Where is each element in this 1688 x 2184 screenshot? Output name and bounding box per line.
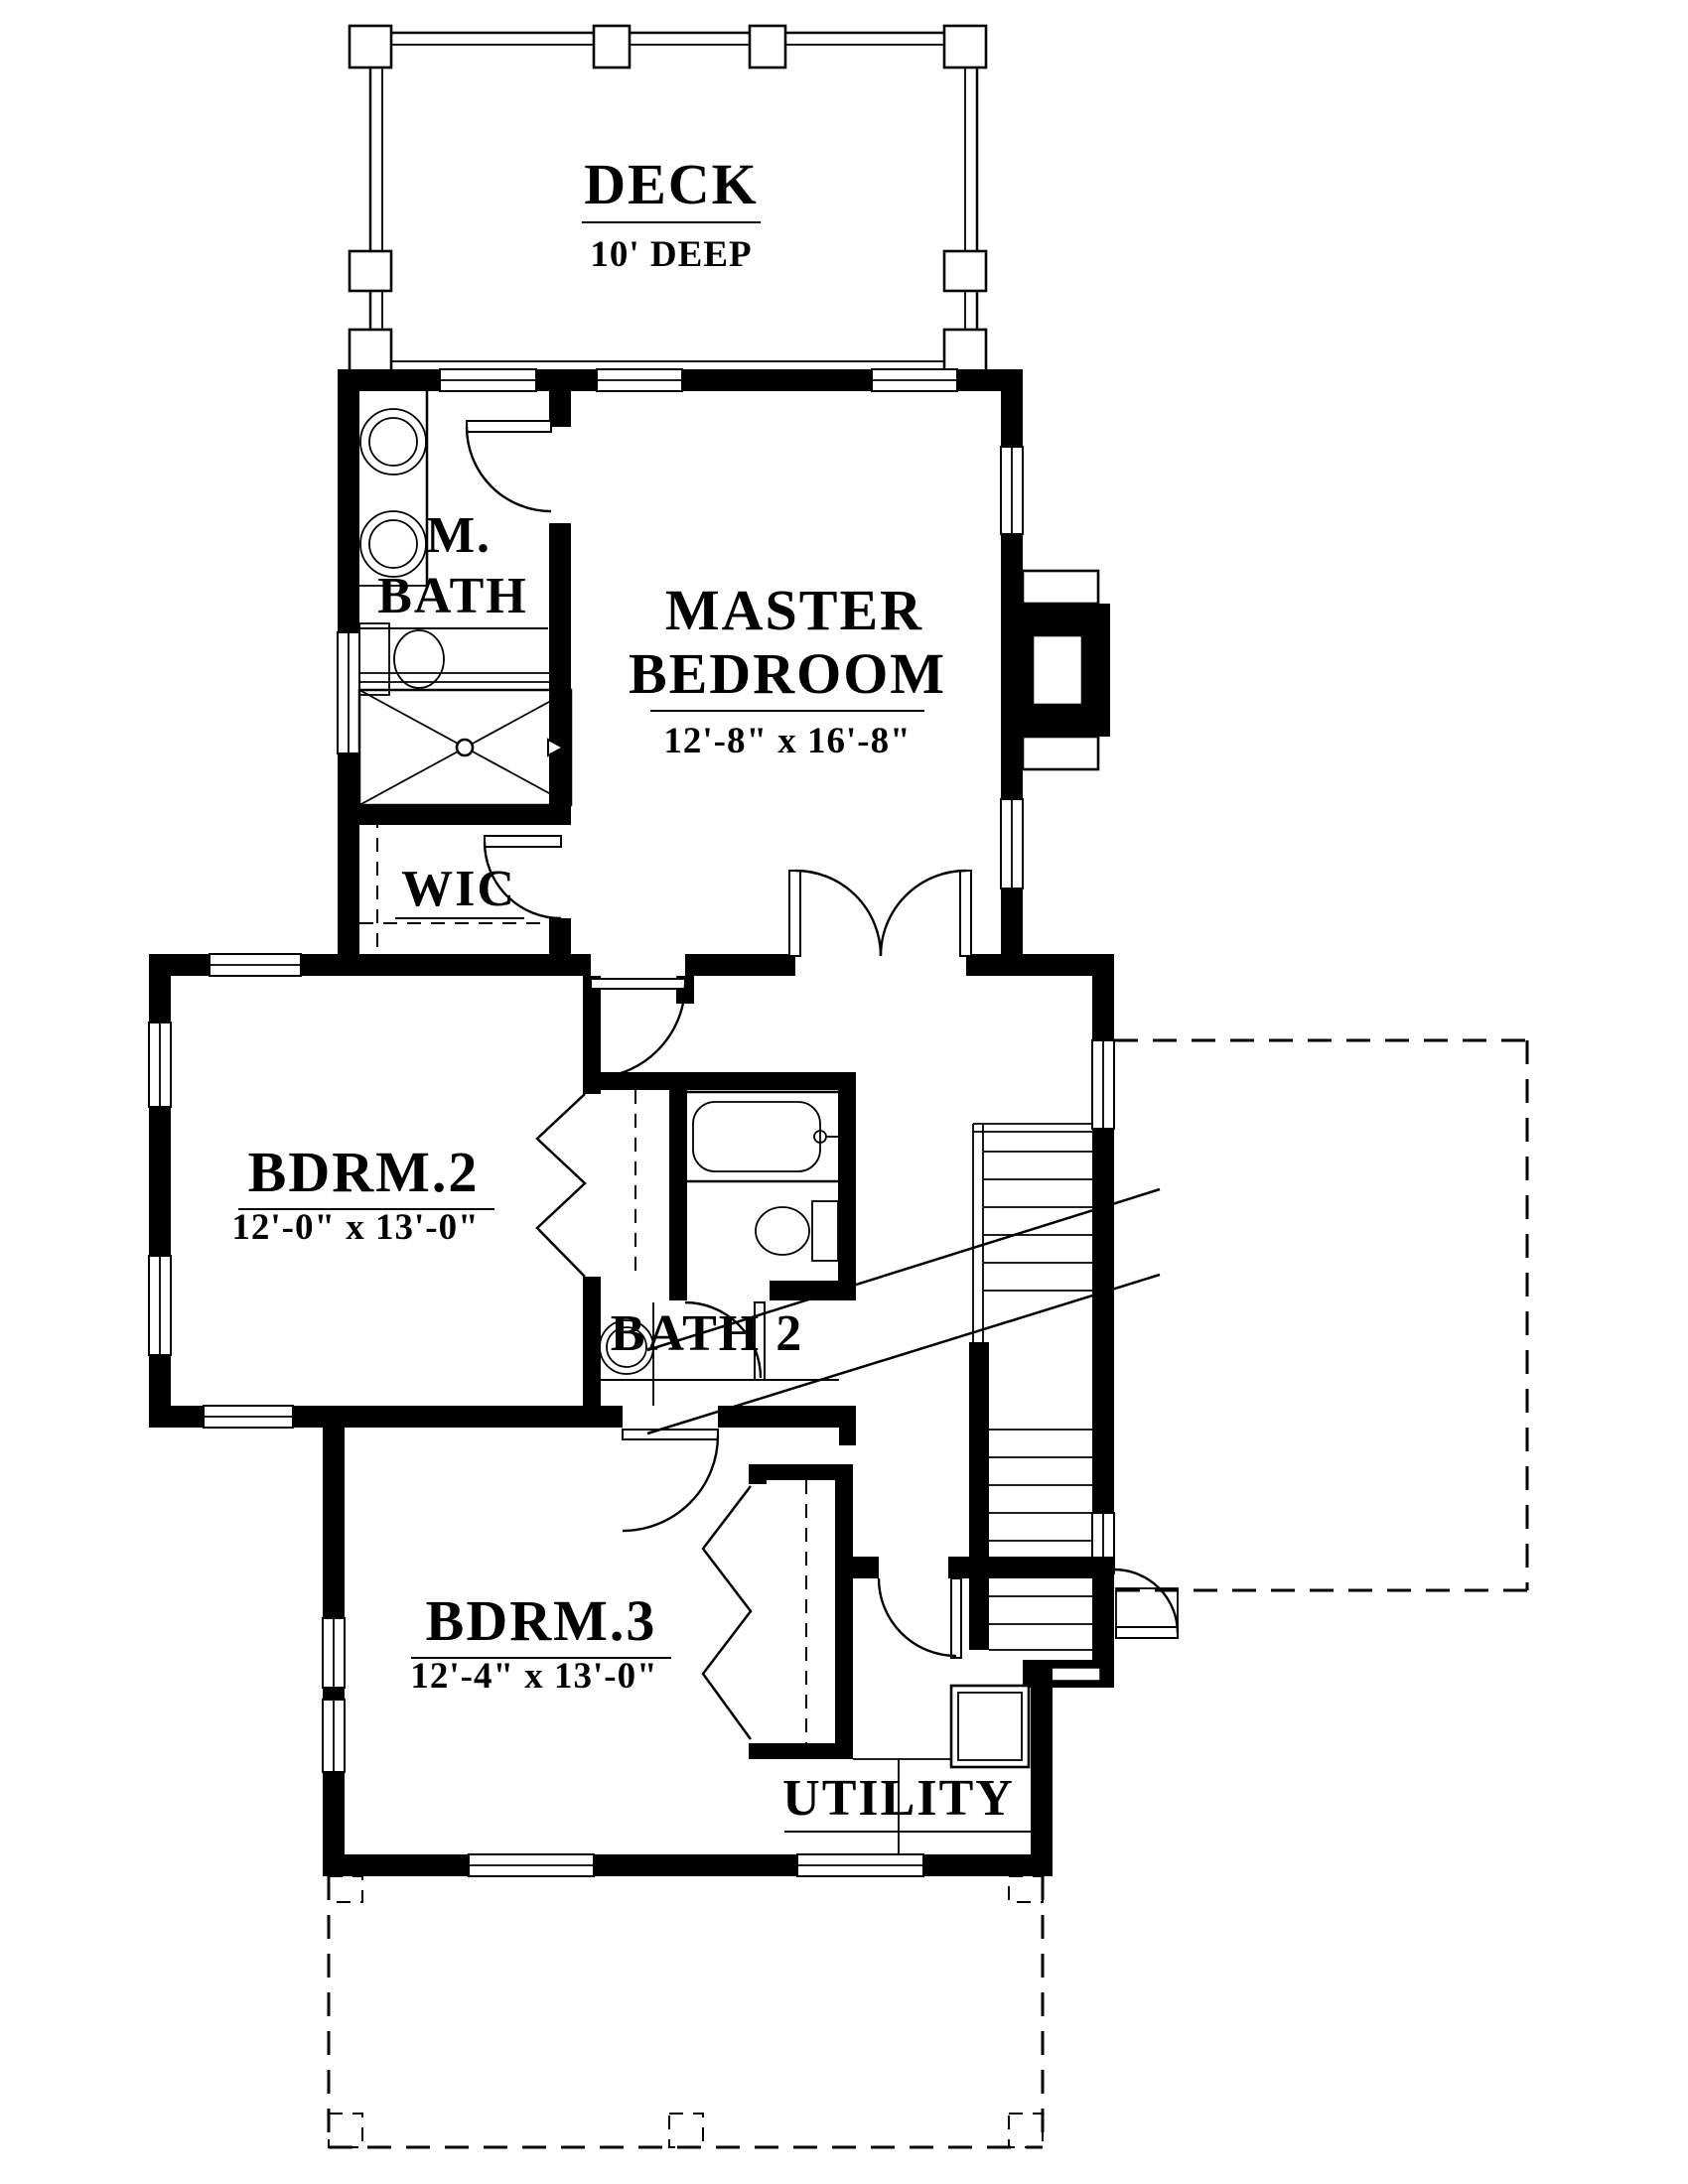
floor-plan-drawing: DECK 10' DEEP M. BATH MASTER BEDROOM 12'… — [0, 0, 1688, 2184]
bdrm2-door-arc — [591, 984, 685, 1078]
closet-opening — [749, 1484, 767, 1741]
utility-label: UTILITY — [782, 1770, 1015, 1827]
landing-door-arc — [1114, 1570, 1178, 1633]
deck-post — [350, 251, 391, 291]
double-door-arc — [795, 871, 881, 956]
deck-label: DECK — [584, 152, 759, 216]
wall-utility-top — [853, 1557, 879, 1578]
wall-bath2-top — [583, 1072, 856, 1090]
bdrm3-label: BDRM.3 — [426, 1588, 657, 1653]
landing-exterior-door — [1114, 1570, 1178, 1638]
sink-icon — [369, 418, 417, 466]
deck-post — [750, 26, 785, 68]
floor-plan-page: DECK 10' DEEP M. BATH MASTER BEDROOM 12'… — [0, 0, 1688, 2184]
washer-dryer-icon — [951, 1686, 1029, 1767]
wall-bottom — [323, 1854, 1053, 1876]
porch-post-dashed — [329, 2114, 362, 2147]
deck-dim-label: 10' DEEP — [590, 234, 752, 275]
wall-stub — [839, 1406, 856, 1445]
door-opening — [795, 953, 966, 977]
firebox — [1033, 635, 1082, 705]
bdrm3-door-leaf — [623, 1430, 718, 1439]
chimney-top-notch — [1023, 571, 1098, 604]
stair-wall — [969, 1342, 989, 1650]
toilet-tank — [359, 623, 389, 695]
mbath-door-leaf — [467, 421, 551, 432]
deck-post — [944, 26, 986, 68]
utility-door-leaf — [951, 1578, 961, 1658]
toilet-tank — [812, 1201, 838, 1261]
double-door-leaf — [960, 871, 971, 956]
deck-post — [944, 330, 986, 371]
toilet-icon — [756, 1207, 809, 1255]
bath2-label: BATH 2 — [611, 1305, 804, 1362]
mbath-label: M. — [426, 507, 492, 564]
toilet-icon — [394, 630, 444, 688]
chimney-bottom-notch — [1023, 737, 1098, 769]
deck-post — [350, 26, 391, 68]
master-suite-doors — [467, 421, 561, 918]
bdrm2-label: BDRM.2 — [248, 1140, 480, 1204]
porch-post-dashed — [329, 1876, 362, 1902]
door-opening — [591, 953, 685, 977]
deck-post — [594, 26, 630, 68]
deck-post — [944, 251, 986, 291]
deck-post — [350, 330, 391, 371]
wall-mbath-partition — [549, 387, 571, 427]
porch-below-dashed — [329, 1876, 1043, 2147]
master-bedroom-dim: 12'-8" x 16'-8" — [663, 721, 911, 761]
double-door-arc — [881, 871, 966, 956]
wall-closet-right — [835, 1464, 853, 1759]
bdrm3-door-arc — [623, 1435, 718, 1531]
porch-post-dashed — [669, 2114, 703, 2147]
double-door-leaf — [789, 871, 800, 956]
fireplace-chimney — [1023, 571, 1110, 769]
tub-icon — [693, 1102, 820, 1171]
master-double-doors — [789, 871, 971, 956]
landing-door-leaf — [1116, 1627, 1178, 1638]
bifold-doors — [703, 1486, 751, 1739]
wic-door-leaf — [485, 836, 561, 847]
mbath-door-arc — [467, 427, 551, 511]
stair-treads-upper — [983, 1152, 1092, 1291]
bdrm3-dim: 12'-4" x 13'-0" — [410, 1656, 657, 1697]
bdrm2-dim: 12'-0" x 13'-0" — [231, 1207, 479, 1248]
wall-mbath-partition — [549, 523, 571, 809]
wall-bdrm2-right — [583, 1277, 601, 1428]
utility-door-arc — [879, 1578, 956, 1656]
shower-drain — [457, 740, 473, 755]
sink-icon — [369, 520, 417, 568]
roof-below-dashed — [1114, 1040, 1527, 1590]
chase-vent — [1049, 1668, 1100, 1681]
wall-utility-right — [1031, 1660, 1053, 1876]
bdrm2-door-leaf — [591, 979, 685, 989]
wall-closet-bottom — [749, 1743, 853, 1759]
wall-wic-top — [338, 805, 571, 825]
master-bedroom-label: BEDROOM — [629, 641, 946, 706]
porch-post-dashed — [1009, 1876, 1043, 1902]
wic-label: WIC — [401, 861, 516, 917]
bifold-doors — [537, 1094, 585, 1277]
porch-post-dashed — [1009, 2114, 1043, 2147]
master-bedroom-label: MASTER — [665, 578, 923, 642]
bdrm3-closet — [703, 1464, 853, 1759]
mbath-label: BATH — [377, 568, 528, 624]
